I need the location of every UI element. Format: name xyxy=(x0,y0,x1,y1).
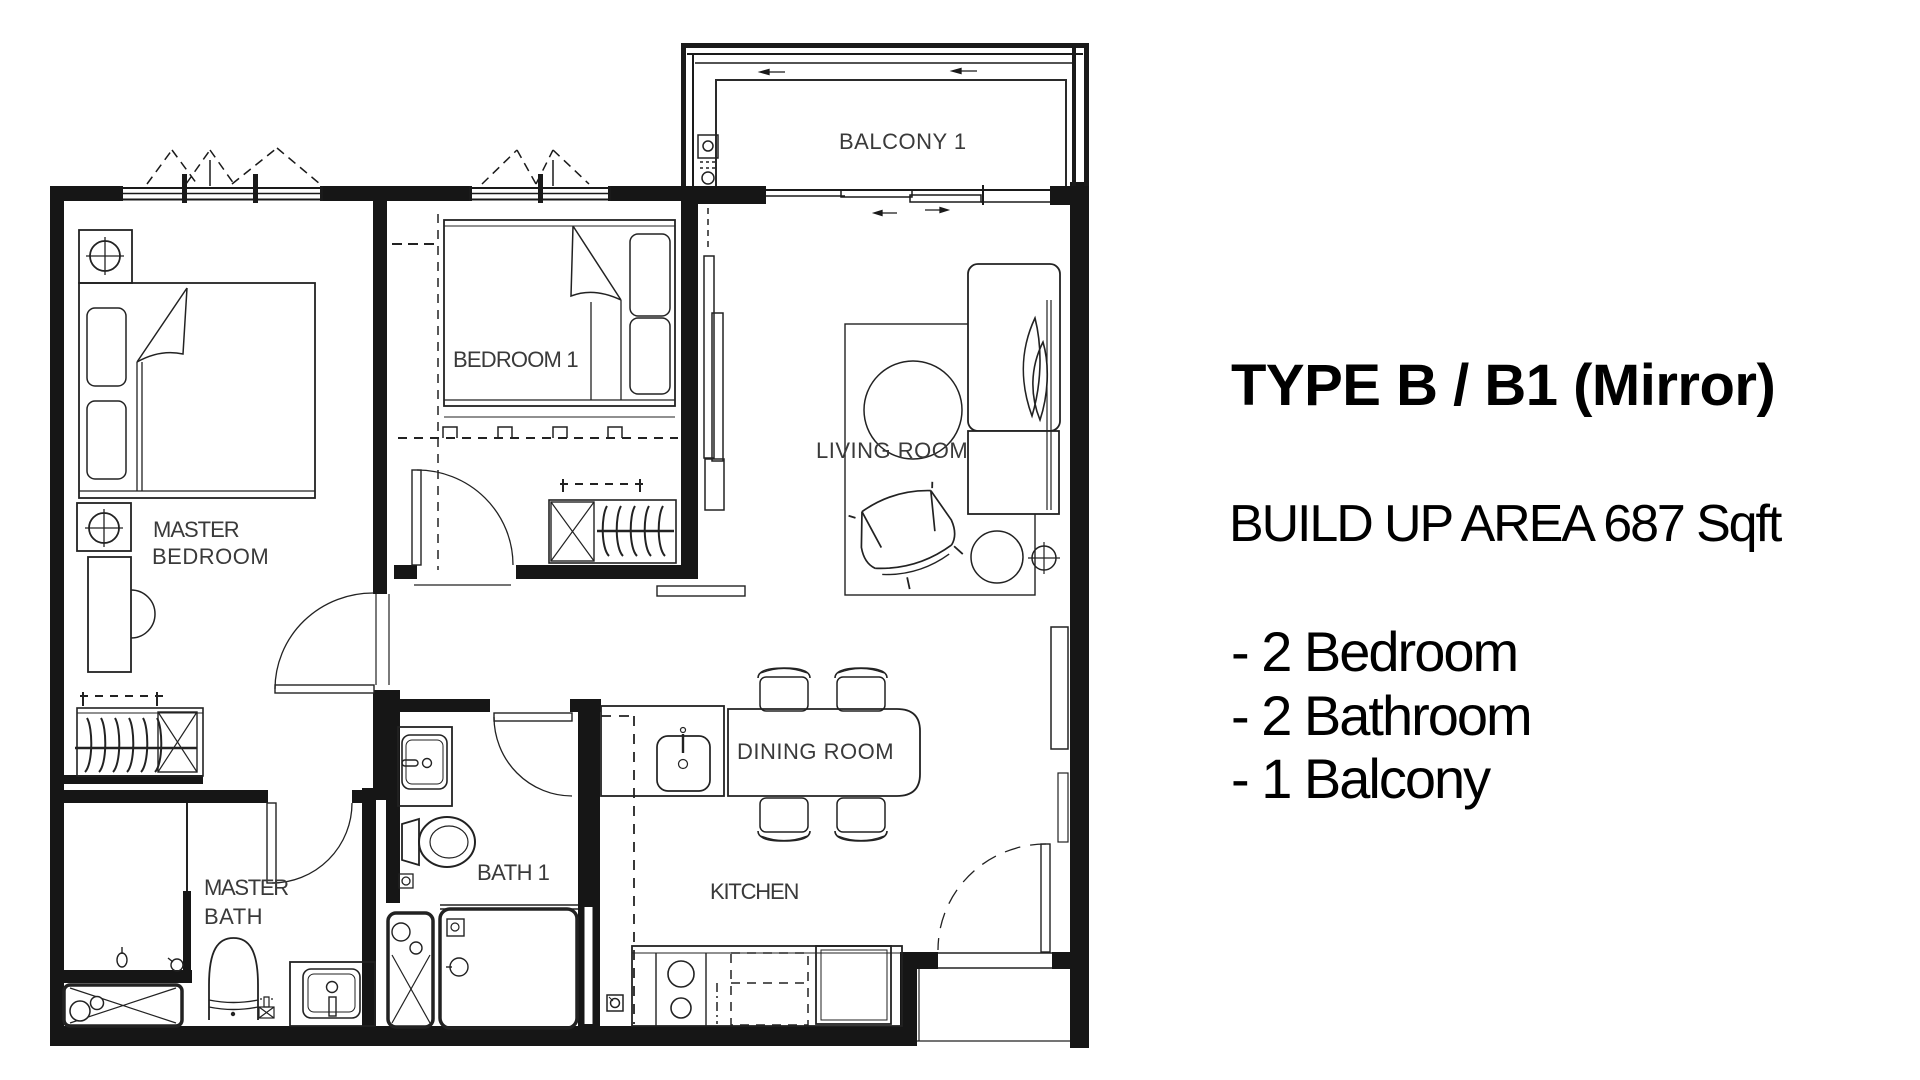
svg-text:MASTER: MASTER xyxy=(204,875,288,900)
svg-text:BEDROOM 1: BEDROOM 1 xyxy=(453,347,578,372)
svg-text:BEDROOM: BEDROOM xyxy=(152,544,269,569)
svg-text:BALCONY 1: BALCONY 1 xyxy=(839,129,967,154)
svg-text:MASTER: MASTER xyxy=(153,517,239,542)
svg-text:KITCHEN: KITCHEN xyxy=(710,879,798,904)
svg-text:DINING ROOM: DINING ROOM xyxy=(737,739,894,764)
svg-text:BATH: BATH xyxy=(204,904,263,929)
svg-text:LIVING ROOM: LIVING ROOM xyxy=(816,438,968,463)
svg-text:BATH 1: BATH 1 xyxy=(477,860,550,885)
